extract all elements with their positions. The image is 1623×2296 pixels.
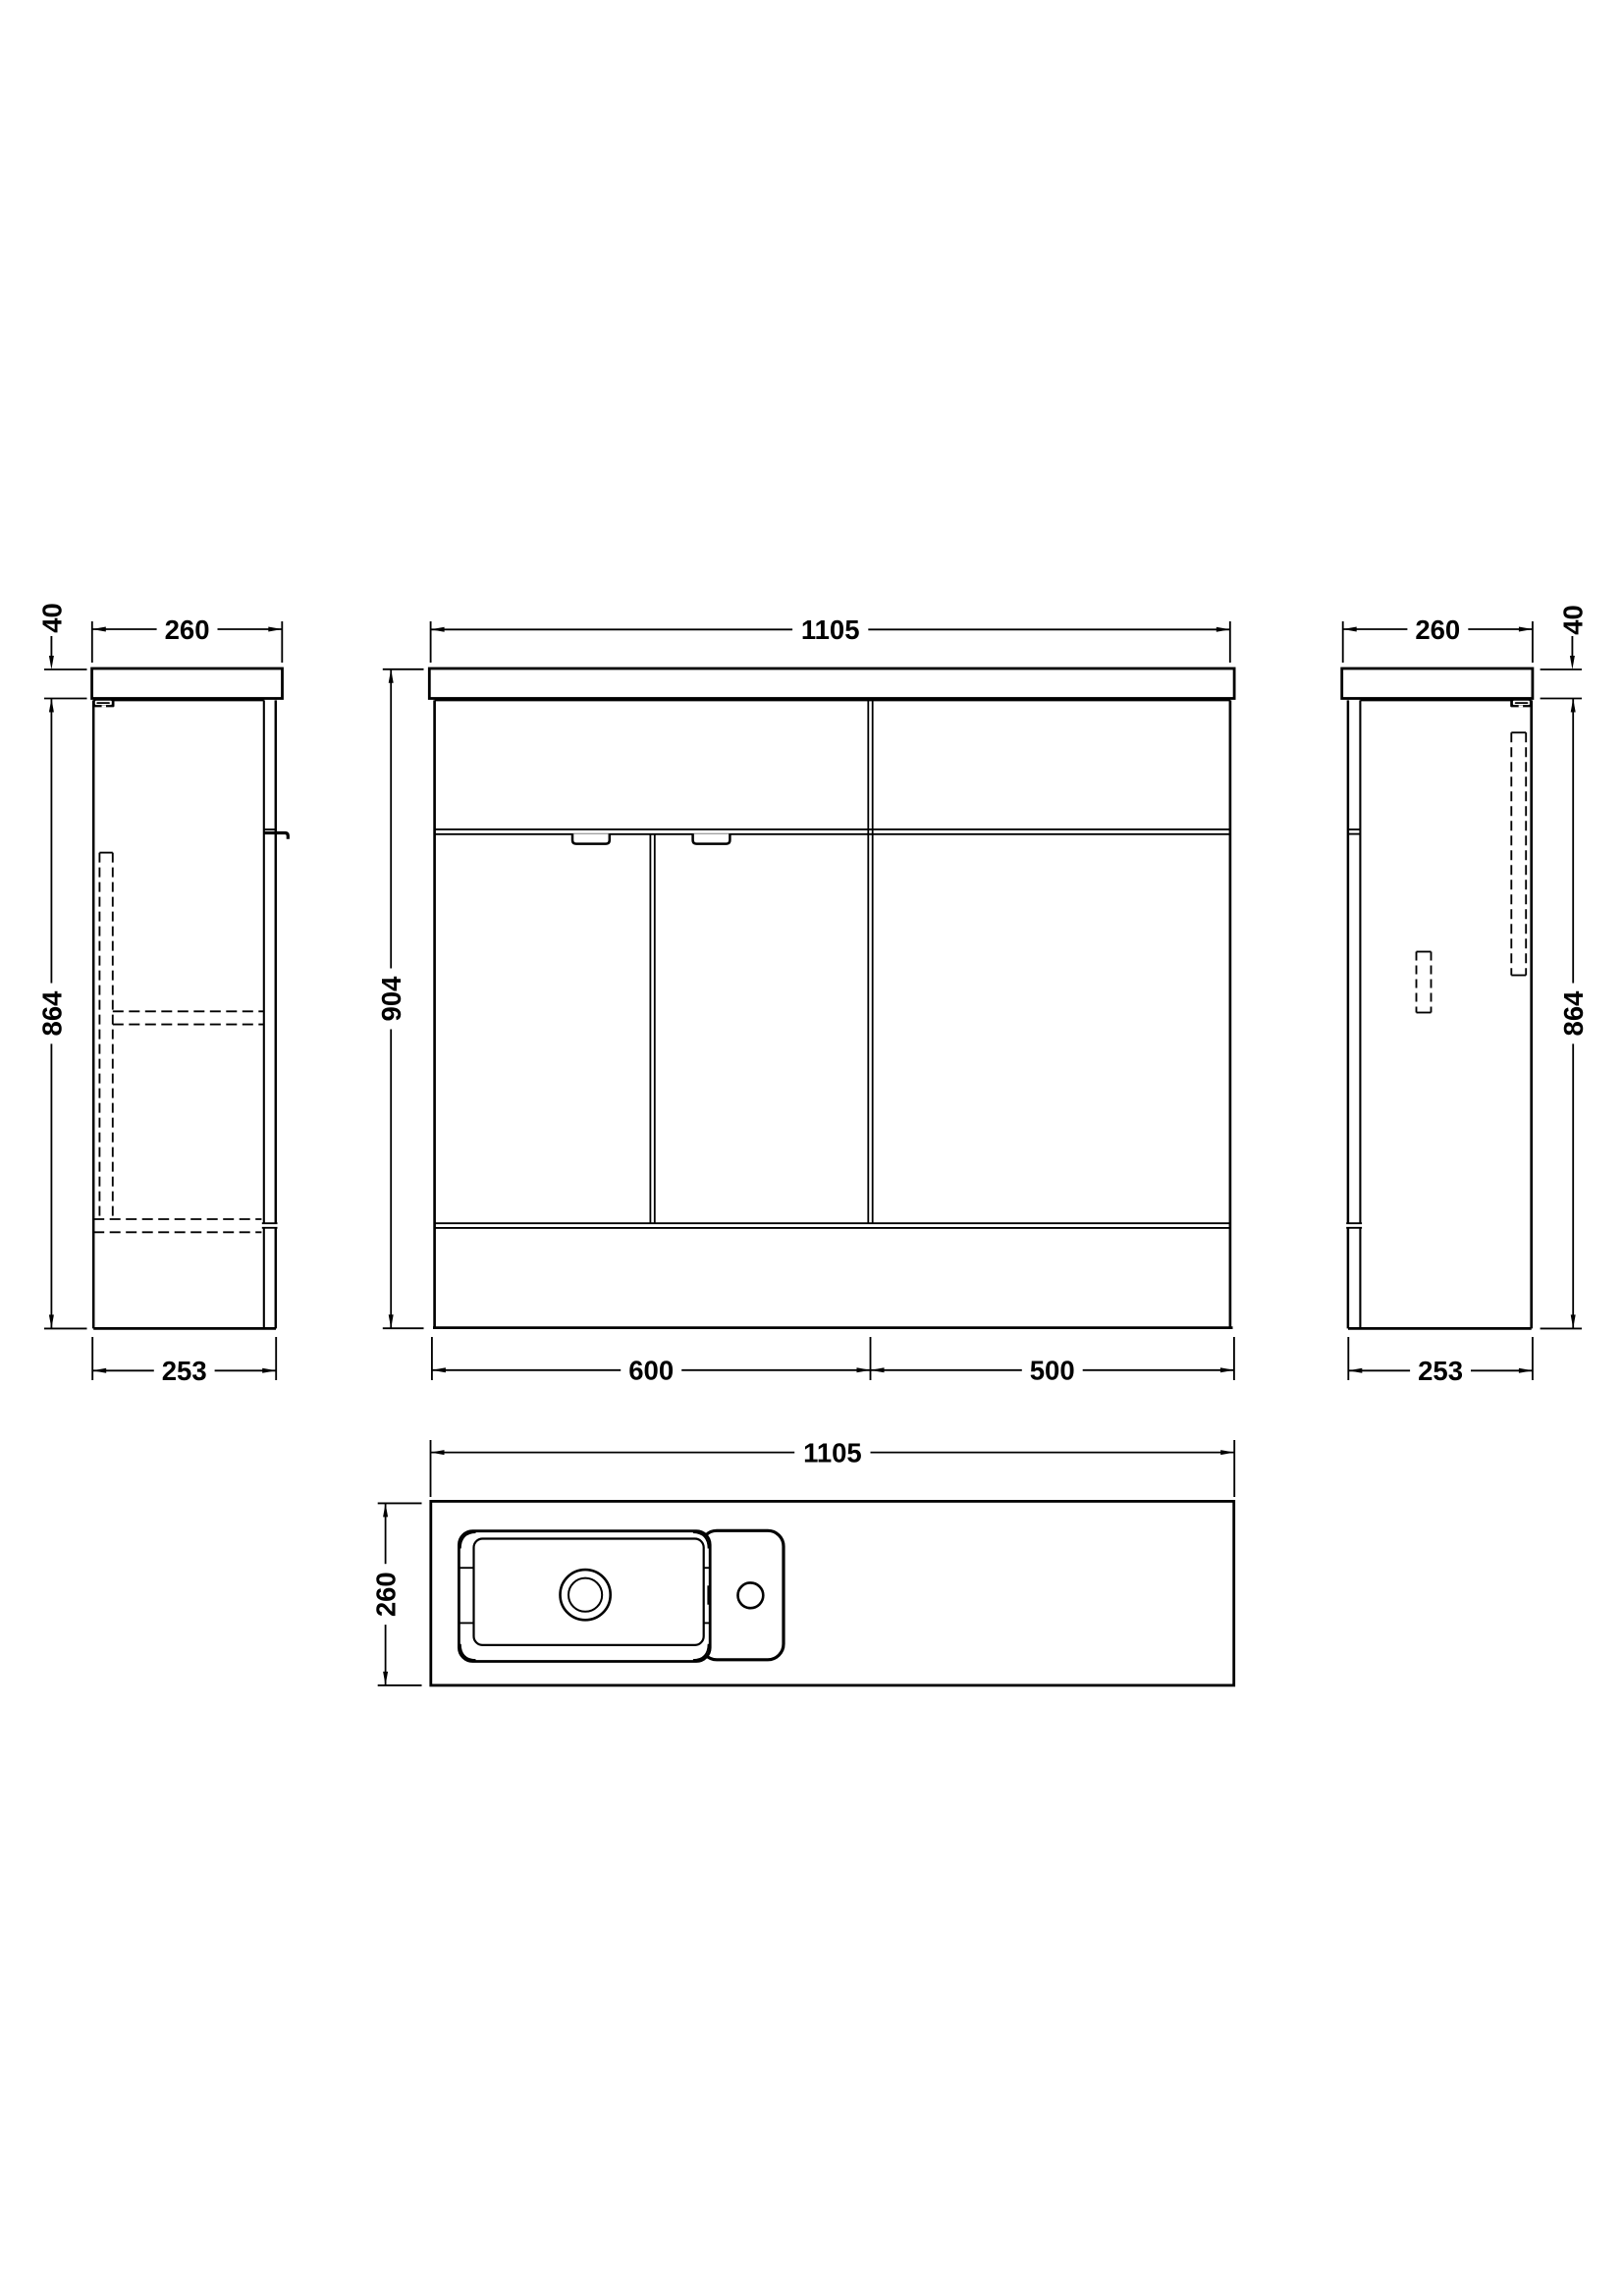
svg-text:500: 500 [1030,1356,1075,1386]
svg-text:1105: 1105 [801,614,860,645]
svg-text:40: 40 [1557,605,1588,635]
svg-text:260: 260 [165,614,210,645]
svg-text:253: 253 [1418,1356,1463,1386]
svg-text:904: 904 [376,976,406,1022]
svg-text:260: 260 [371,1572,402,1617]
svg-text:253: 253 [162,1356,207,1386]
svg-text:864: 864 [1558,990,1589,1037]
svg-text:864: 864 [36,990,67,1037]
svg-text:1105: 1105 [803,1438,862,1468]
svg-text:600: 600 [628,1356,674,1386]
svg-text:260: 260 [1415,614,1460,645]
svg-text:40: 40 [36,603,67,633]
